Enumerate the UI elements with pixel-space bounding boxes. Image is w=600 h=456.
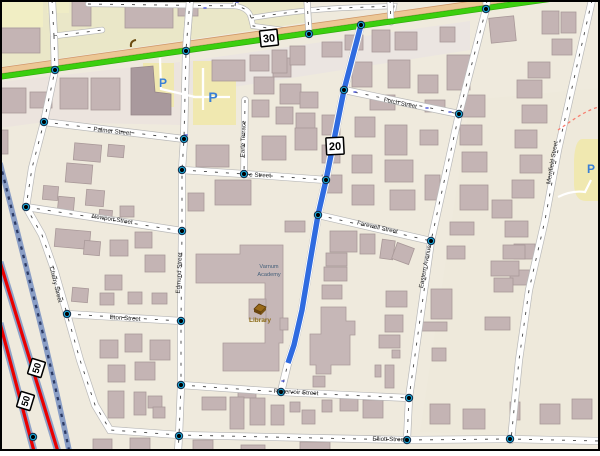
svg-text:Library: Library (249, 317, 271, 324)
svg-text:30: 30 (262, 32, 275, 45)
svg-text:P: P (159, 76, 167, 90)
svg-text:Earle Terrace: Earle Terrace (239, 120, 247, 157)
svg-text:20: 20 (329, 141, 342, 154)
svg-text:Elliott Street: Elliott Street (372, 436, 406, 444)
svg-text:Academy: Academy (257, 272, 281, 278)
svg-text:e Street: e Street (249, 172, 271, 180)
svg-text:P: P (208, 89, 217, 105)
svg-text:Varnum: Varnum (259, 264, 279, 270)
svg-text:P: P (587, 162, 595, 176)
